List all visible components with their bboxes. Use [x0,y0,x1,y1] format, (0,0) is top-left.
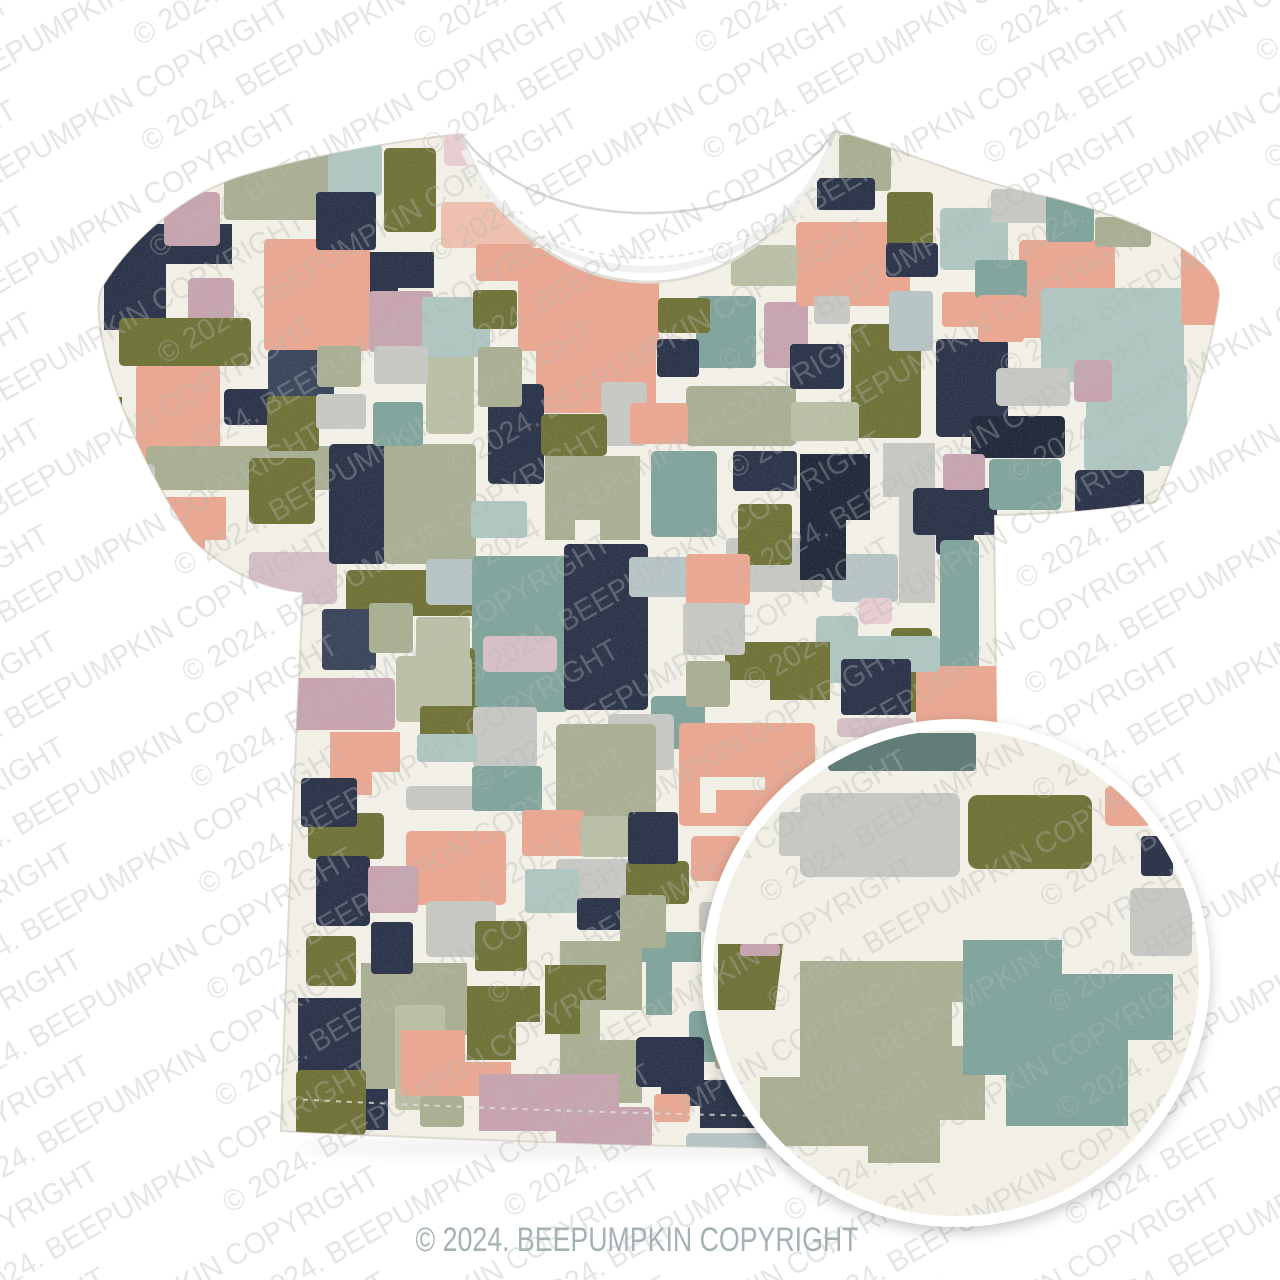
svg-text:© 2024. BEEPUMPKIN COPYRIGHT: © 2024. BEEPUMPKIN COPYRIGHT [416,1221,859,1259]
